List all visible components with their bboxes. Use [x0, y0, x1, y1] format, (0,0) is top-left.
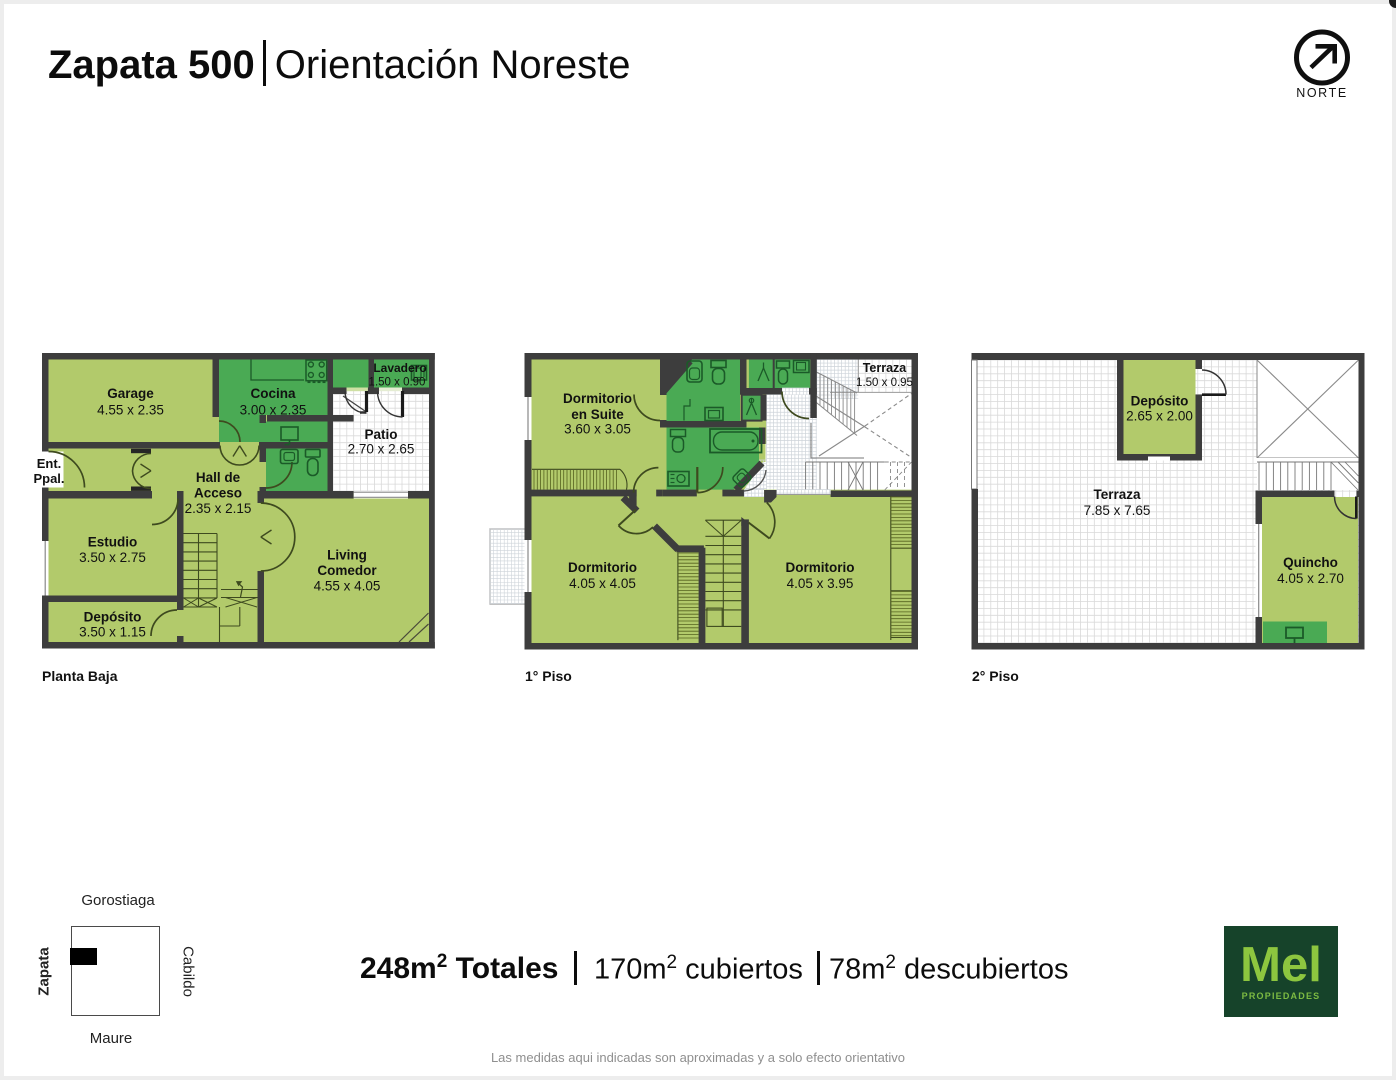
- svg-text:7.85 x 7.65: 7.85 x 7.65: [1084, 503, 1151, 518]
- svg-text:Terraza: Terraza: [1093, 487, 1141, 502]
- svg-text:Quincho: Quincho: [1283, 555, 1338, 570]
- svg-text:Depósito: Depósito: [1131, 394, 1189, 409]
- svg-text:2.65 x 2.00: 2.65 x 2.00: [1126, 409, 1193, 424]
- svg-text:4.05 x 2.70: 4.05 x 2.70: [1277, 571, 1344, 586]
